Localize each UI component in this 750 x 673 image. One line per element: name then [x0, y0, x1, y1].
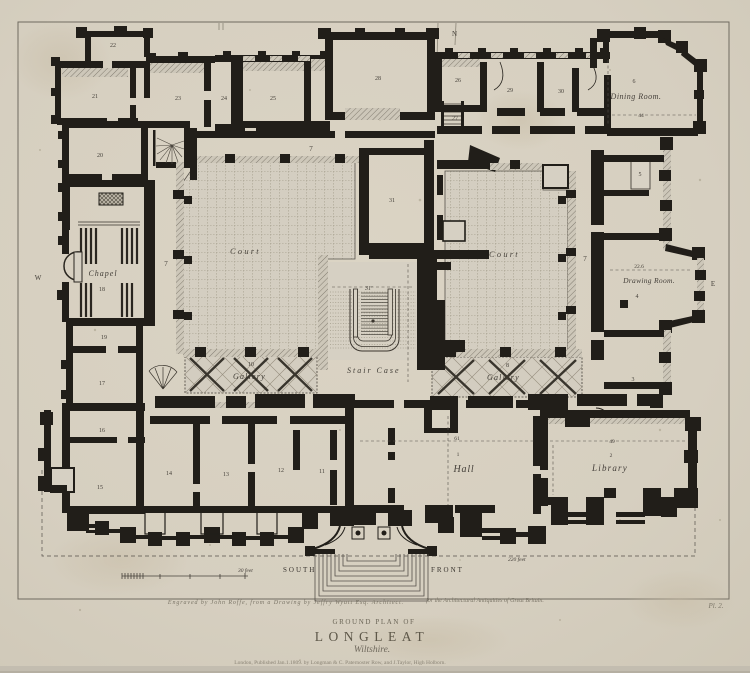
- svg-text:21: 21: [92, 94, 98, 100]
- svg-text:Chapel: Chapel: [88, 269, 117, 278]
- svg-text:10: 10: [248, 362, 254, 368]
- svg-text:22.6: 22.6: [634, 264, 644, 270]
- svg-text:N: N: [452, 30, 457, 38]
- svg-text:17: 17: [99, 381, 105, 387]
- svg-text:29: 29: [507, 88, 513, 94]
- svg-text:5: 5: [639, 172, 642, 178]
- svg-text:31: 31: [389, 198, 395, 204]
- svg-text:for the Architectural Antiquit: for the Architectural Antiquities of Gre…: [426, 597, 544, 604]
- svg-text:18: 18: [99, 287, 105, 293]
- svg-text:16: 16: [99, 428, 105, 434]
- svg-text:LONGLEAT: LONGLEAT: [315, 629, 430, 644]
- svg-text:FRONT: FRONT: [431, 566, 464, 574]
- svg-text:Gallery: Gallery: [233, 372, 266, 381]
- svg-text:11: 11: [319, 469, 325, 475]
- svg-text:220 feet: 220 feet: [508, 556, 526, 563]
- svg-text:20: 20: [97, 153, 103, 159]
- svg-text:28: 28: [375, 76, 381, 82]
- svg-text:Wiltshire.: Wiltshire.: [354, 645, 390, 655]
- svg-text:Court: Court: [489, 249, 520, 259]
- svg-text:W: W: [35, 274, 42, 282]
- svg-text:Court: Court: [230, 246, 261, 256]
- svg-text:1: 1: [457, 452, 460, 458]
- svg-text:31': 31': [364, 286, 373, 292]
- svg-text:London, Published Jan.1.1809.: London, Published Jan.1.1809. by Longman…: [234, 660, 446, 666]
- svg-text:27: 27: [452, 116, 458, 122]
- svg-text:Drawing Room.: Drawing Room.: [622, 276, 675, 285]
- svg-text:SOUTH: SOUTH: [283, 566, 316, 574]
- svg-text:22: 22: [110, 43, 116, 49]
- svg-text:26: 26: [455, 78, 461, 84]
- svg-text:Library: Library: [591, 463, 628, 473]
- svg-text:19: 19: [101, 335, 107, 341]
- svg-text:7: 7: [309, 145, 313, 153]
- svg-text:7: 7: [583, 255, 587, 263]
- svg-text:E: E: [711, 280, 715, 288]
- svg-text:4: 4: [636, 294, 639, 300]
- svg-text:12: 12: [278, 468, 284, 474]
- svg-text:GROUND PLAN OF: GROUND PLAN OF: [332, 618, 415, 626]
- svg-text:24: 24: [221, 96, 227, 102]
- svg-text:30: 30: [558, 89, 564, 95]
- svg-text:15: 15: [97, 485, 103, 491]
- svg-text:6: 6: [633, 79, 636, 85]
- svg-text:7: 7: [164, 260, 168, 268]
- svg-text:Dining Room.: Dining Room.: [610, 92, 662, 101]
- svg-text:Hall: Hall: [453, 464, 475, 475]
- svg-text:8: 8: [506, 363, 509, 369]
- svg-text:2: 2: [610, 453, 613, 459]
- svg-text:25: 25: [270, 96, 276, 102]
- svg-text:Gallery: Gallery: [487, 373, 520, 382]
- svg-text:Pl. 2.: Pl. 2.: [708, 602, 724, 610]
- svg-text:14: 14: [166, 471, 172, 477]
- svg-text:13: 13: [223, 472, 229, 478]
- svg-text:3: 3: [632, 377, 635, 383]
- svg-text:Engraved by John Roffe, from a: Engraved by John Roffe, from a Drawing b…: [167, 599, 404, 606]
- svg-text:44: 44: [638, 113, 644, 119]
- svg-text:Stair Case: Stair Case: [347, 366, 401, 375]
- svg-text:61: 61: [454, 436, 460, 442]
- svg-text:49: 49: [609, 439, 615, 445]
- svg-text:23: 23: [175, 96, 181, 102]
- svg-text:30 feet: 30 feet: [237, 567, 253, 574]
